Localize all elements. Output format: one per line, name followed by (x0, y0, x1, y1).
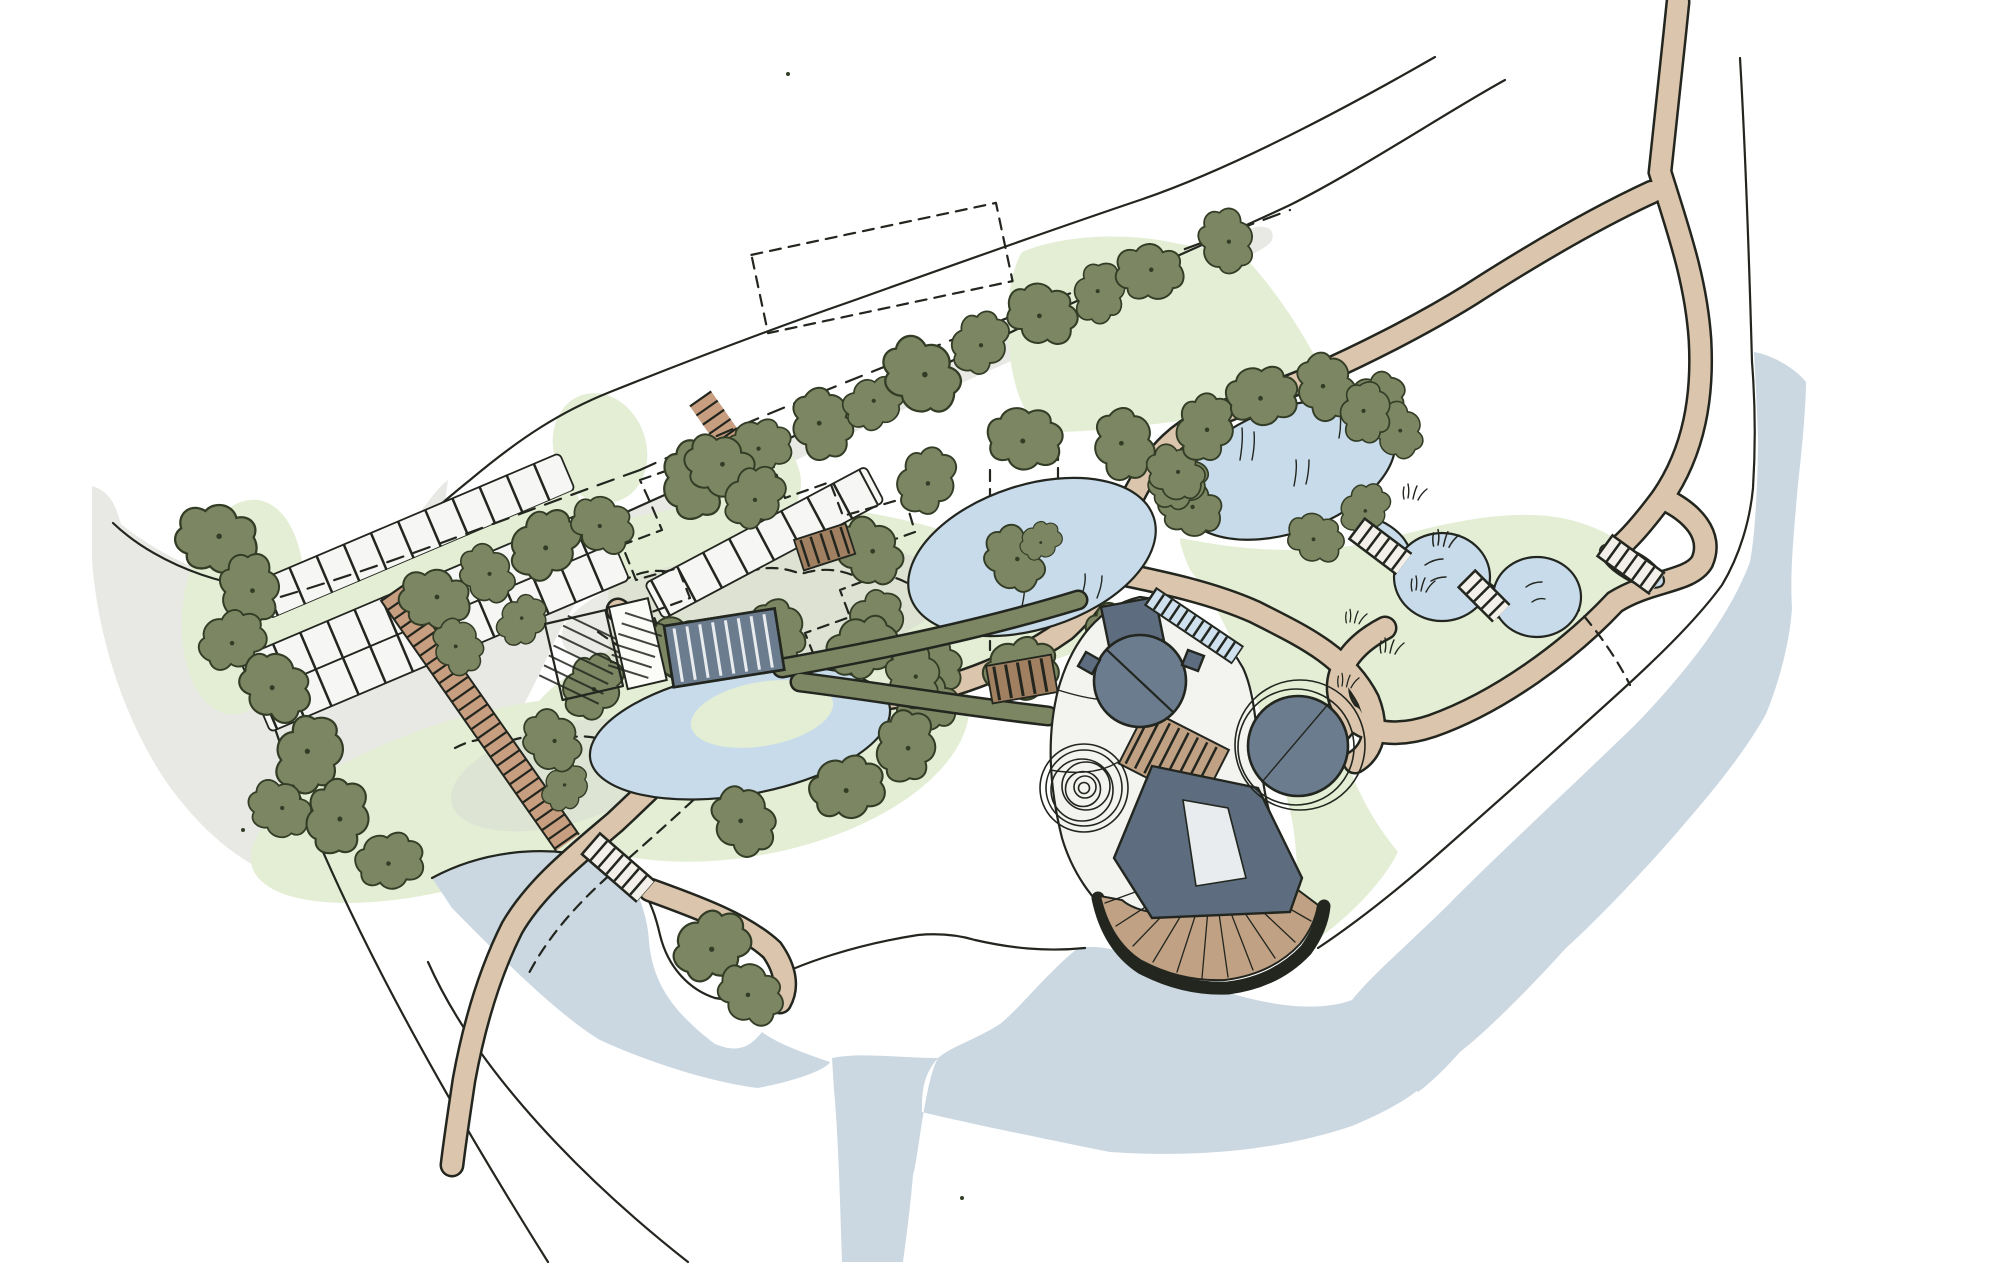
masterplan-canvas: Hand-drawn landscape masterplan site ske… (0, 0, 2000, 1264)
masterplan-drawing: Hand-drawn landscape masterplan site ske… (0, 0, 2000, 1264)
